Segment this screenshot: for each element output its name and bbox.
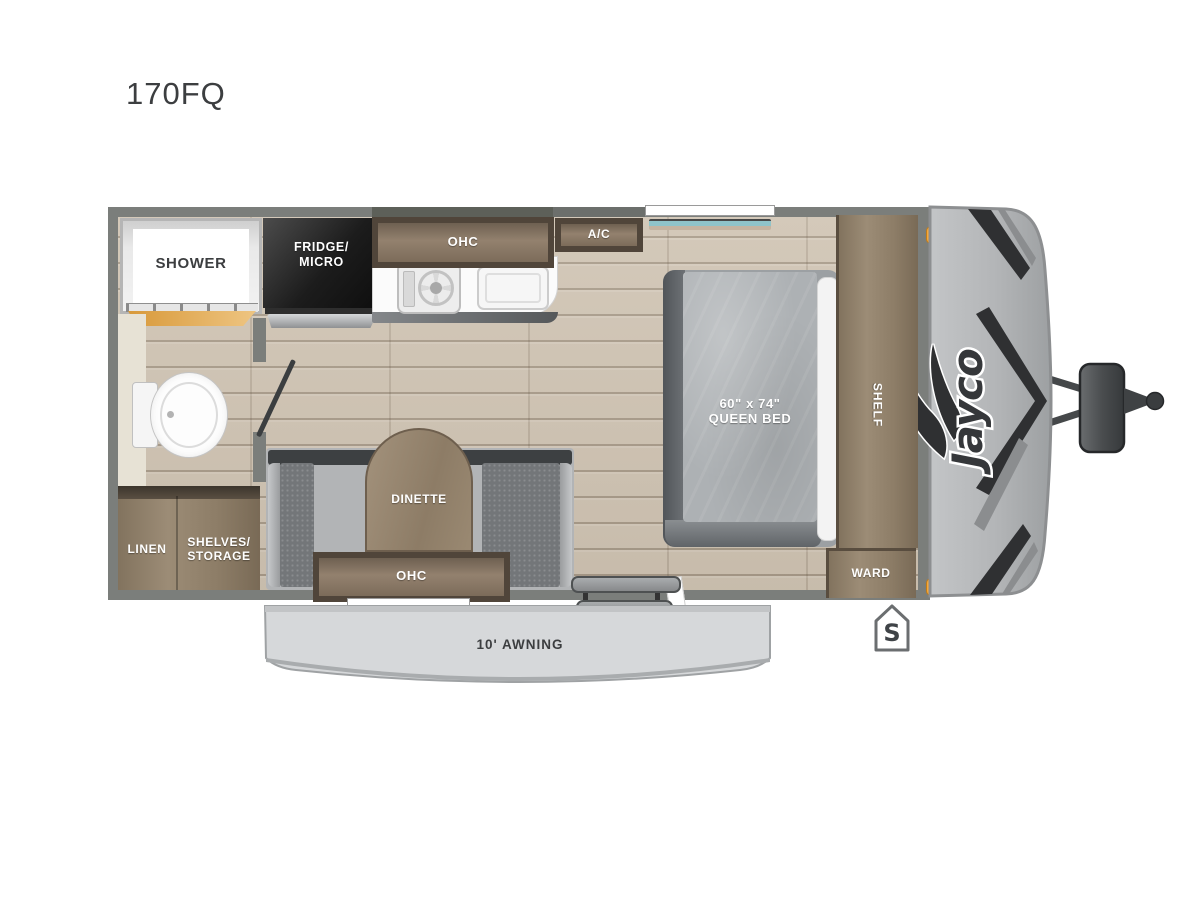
bath-wall-stub-top	[253, 318, 266, 362]
shower-label: SHOWER	[120, 255, 262, 273]
ac-label: A/C	[555, 227, 643, 241]
dinette-armrest-right	[560, 463, 572, 587]
dinette-ohc-label: OHC	[313, 568, 510, 583]
floorplan-canvas: 170FQ SHOWER LINEN SHELVES/STORAGE FRIDG…	[0, 0, 1200, 900]
bath-wall-stub-bottom	[253, 432, 266, 482]
spare-badge: S	[870, 603, 914, 655]
roof-edge-over-ac	[553, 207, 645, 217]
bedroom-window-sill	[649, 219, 771, 230]
bed-blanket-left-edge	[663, 270, 685, 547]
roof-edge-over-ohc	[372, 207, 554, 217]
dinette-armrest-left	[268, 463, 280, 587]
dinette-cushion-left	[280, 463, 314, 587]
shelves-storage-label: SHELVES/STORAGE	[176, 535, 262, 563]
hitch-coupler	[1124, 388, 1148, 414]
floorplan-title: 170FQ	[126, 76, 226, 113]
linen-label: LINEN	[114, 542, 180, 556]
spare-badge-letter: S	[883, 619, 900, 647]
front-cap-and-hitch: Jayco	[918, 198, 1188, 618]
stove	[397, 262, 461, 314]
fridge-micro-label: FRIDGE/MICRO	[263, 240, 380, 270]
entry-step-1	[571, 576, 681, 593]
kitchen-counter-edge	[372, 312, 558, 323]
bed-blanket-foot-edge	[665, 520, 821, 547]
sink	[477, 266, 549, 310]
wall-bottom	[108, 590, 930, 600]
fridge-shelf	[265, 308, 378, 314]
shower-door-track	[126, 303, 258, 312]
bedroom-window	[645, 205, 775, 216]
dinette-label: DINETTE	[365, 492, 473, 506]
brand-name-text: Jayco	[943, 349, 992, 475]
shelf-cabinet	[836, 215, 918, 548]
fridge-counter-edge	[267, 314, 377, 328]
kitchen-ohc-label: OHC	[372, 234, 554, 249]
toilet-bowl	[150, 372, 228, 458]
shelf-label: SHELF	[836, 398, 918, 412]
awning-label: 10' AWNING	[410, 637, 630, 653]
propane-tank-cover	[1080, 364, 1124, 452]
hitch-ball	[1147, 393, 1164, 410]
dinette-table	[365, 428, 473, 552]
queen-bed-label: 60" x 74"QUEEN BED	[683, 396, 817, 427]
ward-label: WARD	[826, 566, 916, 580]
shower-threshold	[128, 311, 256, 326]
